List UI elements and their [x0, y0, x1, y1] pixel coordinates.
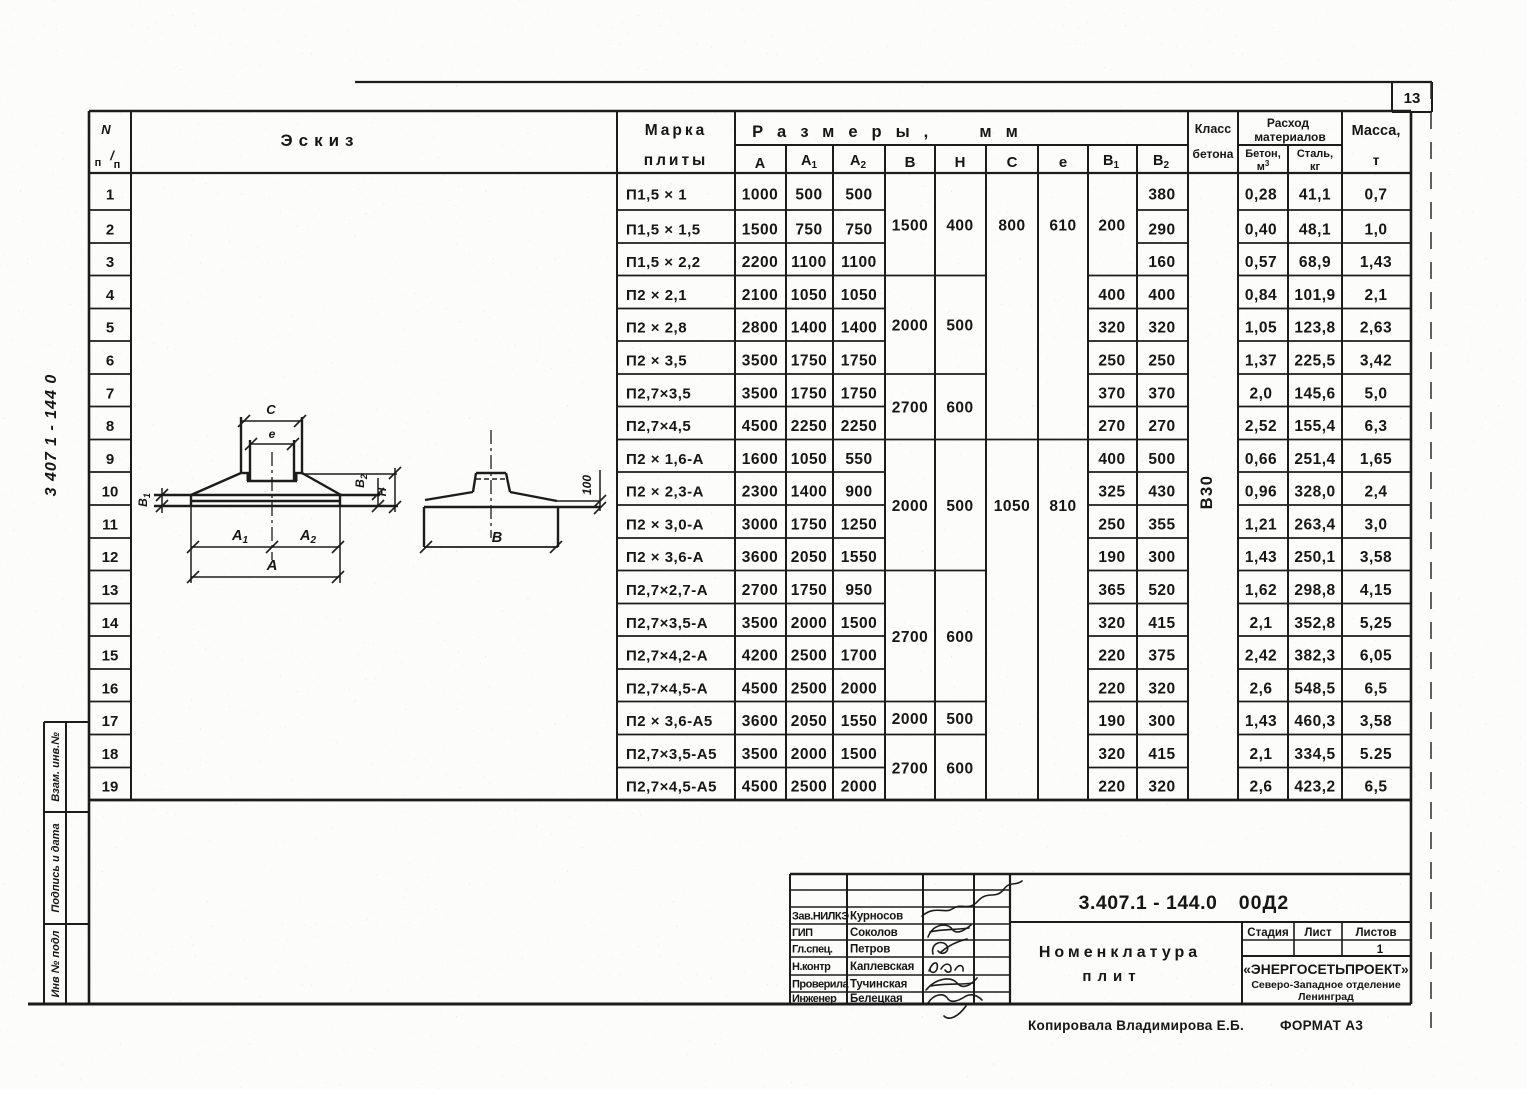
svg-text:Масса,: Масса, — [1352, 123, 1401, 139]
svg-text:3000: 3000 — [742, 516, 778, 533]
svg-text:Каплевская: Каплевская — [850, 961, 914, 973]
svg-text:2,1: 2,1 — [1249, 615, 1272, 632]
svg-text:П2 × 3,6-А: П2 × 3,6-А — [626, 549, 704, 566]
svg-text:2,6: 2,6 — [1249, 779, 1272, 796]
svg-text:380: 380 — [1148, 187, 1175, 204]
svg-text:1600: 1600 — [742, 451, 778, 468]
svg-text:13: 13 — [1404, 90, 1421, 107]
svg-text:3500: 3500 — [742, 615, 778, 632]
svg-text:Ленинград: Ленинград — [1298, 991, 1354, 1003]
svg-text:Сталь,: Сталь, — [1297, 148, 1333, 160]
svg-text:950: 950 — [845, 582, 872, 599]
svg-text:320: 320 — [1148, 779, 1175, 796]
svg-text:2100: 2100 — [742, 287, 778, 304]
svg-text:1500: 1500 — [892, 217, 928, 234]
svg-text:290: 290 — [1148, 221, 1175, 238]
svg-text:В: В — [492, 530, 502, 546]
svg-text:ФОРМАТ А3: ФОРМАТ А3 — [1280, 1018, 1363, 1033]
svg-text:7: 7 — [106, 385, 114, 402]
svg-text:1750: 1750 — [841, 353, 877, 370]
svg-text:270: 270 — [1098, 418, 1125, 435]
svg-text:298,8: 298,8 — [1294, 582, 1335, 599]
svg-text:2000: 2000 — [892, 498, 928, 515]
svg-text:А: А — [266, 557, 278, 574]
svg-text:415: 415 — [1148, 746, 1175, 763]
svg-text:352,8: 352,8 — [1294, 615, 1335, 632]
svg-text:2500: 2500 — [791, 648, 827, 665]
svg-text:370: 370 — [1098, 385, 1125, 402]
svg-text:900: 900 — [845, 484, 872, 501]
svg-text:400: 400 — [1098, 287, 1125, 304]
svg-text:2700: 2700 — [892, 760, 928, 777]
svg-text:2050: 2050 — [791, 713, 827, 730]
svg-text:2500: 2500 — [791, 779, 827, 796]
svg-text:500: 500 — [946, 318, 973, 335]
svg-text:375: 375 — [1148, 648, 1175, 665]
svg-text:1: 1 — [1377, 944, 1384, 956]
svg-text:П2,7×3,5-А: П2,7×3,5-А — [626, 615, 708, 632]
svg-text:Взам. инв.№: Взам. инв.№ — [50, 732, 62, 802]
svg-text:1,21: 1,21 — [1245, 516, 1277, 533]
svg-text:Белецкая: Белецкая — [850, 993, 903, 1005]
svg-text:1000: 1000 — [742, 187, 778, 204]
svg-text:Курносов: Курносов — [850, 911, 903, 923]
svg-text:2200: 2200 — [742, 254, 778, 271]
svg-text:41,1: 41,1 — [1299, 187, 1331, 204]
svg-text:Номенклатура: Номенклатура — [1039, 944, 1201, 961]
svg-text:П2,7×4,5-А5: П2,7×4,5-А5 — [626, 779, 717, 796]
svg-text:Н: Н — [955, 154, 966, 171]
svg-text:155,4: 155,4 — [1294, 418, 1335, 435]
svg-text:Северо-Западное отделение: Северо-Западное отделение — [1251, 979, 1401, 991]
svg-text:2,1: 2,1 — [1249, 746, 1272, 763]
svg-text:Тучинская: Тучинская — [850, 979, 907, 991]
svg-text:П2,7×2,7-А: П2,7×2,7-А — [626, 582, 708, 599]
svg-text:1,37: 1,37 — [1245, 353, 1277, 370]
svg-text:0,66: 0,66 — [1245, 451, 1277, 468]
svg-text:А: А — [755, 156, 766, 172]
svg-text:600: 600 — [946, 400, 973, 417]
svg-text:3600: 3600 — [742, 549, 778, 566]
svg-text:750: 750 — [845, 221, 872, 238]
svg-text:2000: 2000 — [791, 746, 827, 763]
svg-text:320: 320 — [1098, 320, 1125, 337]
svg-text:17: 17 — [102, 713, 119, 730]
svg-text:500: 500 — [1148, 451, 1175, 468]
svg-text:4500: 4500 — [742, 779, 778, 796]
svg-text:1,43: 1,43 — [1360, 254, 1392, 271]
svg-text:3600: 3600 — [742, 713, 778, 730]
svg-text:П2,7×4,5-А: П2,7×4,5-А — [626, 680, 708, 697]
svg-text:Проверила: Проверила — [792, 979, 850, 991]
svg-text:1,05: 1,05 — [1245, 320, 1277, 337]
svg-text:плит: плит — [1082, 968, 1141, 985]
svg-text:2700: 2700 — [742, 582, 778, 599]
svg-text:10: 10 — [102, 484, 119, 501]
svg-text:1400: 1400 — [791, 320, 827, 337]
svg-text:П2 × 3,0-А: П2 × 3,0-А — [626, 516, 704, 533]
svg-text:кг: кг — [1310, 161, 1321, 173]
svg-text:П1,5 × 2,2: П1,5 × 2,2 — [626, 254, 701, 271]
svg-text:5.25: 5.25 — [1360, 746, 1392, 763]
svg-text:П2 × 2,1: П2 × 2,1 — [626, 287, 687, 304]
svg-text:4,15: 4,15 — [1360, 582, 1392, 599]
svg-text:1050: 1050 — [841, 287, 877, 304]
svg-text:3500: 3500 — [742, 353, 778, 370]
svg-text:П2 × 3,6-А5: П2 × 3,6-А5 — [626, 713, 713, 730]
svg-text:6,3: 6,3 — [1364, 418, 1387, 435]
svg-text:250: 250 — [1148, 353, 1175, 370]
svg-text:1700: 1700 — [841, 648, 877, 665]
svg-text:0,28: 0,28 — [1245, 187, 1277, 204]
svg-text:Петров: Петров — [850, 944, 890, 956]
svg-text:220: 220 — [1098, 779, 1125, 796]
svg-text:1050: 1050 — [791, 451, 827, 468]
svg-text:2300: 2300 — [742, 484, 778, 501]
svg-text:550: 550 — [845, 451, 872, 468]
svg-text:Лист: Лист — [1304, 927, 1332, 939]
svg-text:1750: 1750 — [791, 353, 827, 370]
svg-text:П1,5 × 1: П1,5 × 1 — [626, 187, 687, 204]
svg-text:100: 100 — [580, 475, 594, 495]
svg-text:П2 × 3,5: П2 × 3,5 — [626, 353, 687, 370]
svg-text:250,1: 250,1 — [1294, 549, 1335, 566]
svg-text:6,05: 6,05 — [1360, 648, 1392, 665]
svg-text:1500: 1500 — [841, 615, 877, 632]
svg-text:2700: 2700 — [892, 400, 928, 417]
svg-text:1750: 1750 — [791, 582, 827, 599]
svg-text:2,1: 2,1 — [1364, 287, 1387, 304]
svg-text:19: 19 — [102, 779, 119, 796]
svg-text:Расход: Расход — [1267, 116, 1310, 130]
svg-text:Соколов: Соколов — [850, 927, 898, 939]
svg-text:П1,5 × 1,5: П1,5 × 1,5 — [626, 221, 701, 238]
svg-text:3,58: 3,58 — [1360, 549, 1392, 566]
svg-text:Листов: Листов — [1355, 927, 1396, 939]
svg-text:2000: 2000 — [841, 779, 877, 796]
svg-text:2000: 2000 — [892, 711, 928, 728]
svg-text:328,0: 328,0 — [1294, 484, 1335, 501]
svg-text:бетона: бетона — [1193, 147, 1234, 161]
svg-text:плиты: плиты — [644, 152, 709, 169]
svg-text:355: 355 — [1148, 516, 1175, 533]
svg-text:3: 3 — [106, 254, 114, 271]
svg-text:«ЭНЕРГОСЕТЬПРОЕКТ»: «ЭНЕРГОСЕТЬПРОЕКТ» — [1243, 962, 1409, 977]
svg-text:1,65: 1,65 — [1360, 451, 1392, 468]
svg-text:13: 13 — [102, 582, 119, 599]
svg-text:12: 12 — [102, 549, 119, 566]
svg-text:3.407.1 - 144.0: 3.407.1 - 144.0 — [1079, 892, 1218, 914]
svg-text:1,43: 1,43 — [1245, 549, 1277, 566]
svg-text:382,3: 382,3 — [1294, 648, 1335, 665]
svg-text:3,42: 3,42 — [1360, 353, 1392, 370]
svg-text:0,57: 0,57 — [1245, 254, 1277, 271]
svg-text:225,5: 225,5 — [1294, 353, 1335, 370]
svg-text:1750: 1750 — [791, 385, 827, 402]
svg-text:3,58: 3,58 — [1360, 713, 1392, 730]
svg-text:200: 200 — [1098, 217, 1125, 234]
svg-text:6,5: 6,5 — [1364, 680, 1387, 697]
svg-text:3500: 3500 — [742, 385, 778, 402]
svg-text:П2,7×3,5: П2,7×3,5 — [626, 385, 691, 402]
svg-text:251,4: 251,4 — [1294, 451, 1335, 468]
svg-text:Марка: Марка — [645, 122, 708, 139]
svg-text:п: п — [114, 159, 121, 171]
svg-text:е: е — [269, 427, 276, 441]
svg-text:415: 415 — [1148, 615, 1175, 632]
svg-text:1050: 1050 — [791, 287, 827, 304]
svg-text:1: 1 — [106, 187, 114, 204]
svg-text:Класс: Класс — [1195, 122, 1231, 136]
svg-text:2000: 2000 — [791, 615, 827, 632]
svg-text:Инженер: Инженер — [792, 993, 837, 1005]
svg-text:423,2: 423,2 — [1294, 779, 1335, 796]
svg-text:1,43: 1,43 — [1245, 713, 1277, 730]
svg-text:334,5: 334,5 — [1294, 746, 1335, 763]
svg-text:263,4: 263,4 — [1294, 516, 1335, 533]
svg-text:2250: 2250 — [791, 418, 827, 435]
svg-text:Инв № подл: Инв № подл — [50, 930, 62, 997]
svg-text:1400: 1400 — [791, 484, 827, 501]
svg-text:500: 500 — [795, 187, 822, 204]
svg-text:320: 320 — [1148, 320, 1175, 337]
svg-text:400: 400 — [946, 217, 973, 234]
svg-text:500: 500 — [946, 711, 973, 728]
svg-text:4: 4 — [106, 287, 115, 304]
svg-text:Копировала Владимирова Е.Б.: Копировала Владимирова Е.Б. — [1028, 1018, 1244, 1033]
svg-text:материалов: материалов — [1254, 130, 1326, 144]
svg-text:4500: 4500 — [742, 418, 778, 435]
svg-text:600: 600 — [946, 760, 973, 777]
svg-text:320: 320 — [1098, 746, 1125, 763]
svg-text:2800: 2800 — [742, 320, 778, 337]
svg-text:В30: В30 — [1198, 475, 1216, 510]
svg-text:Зав.НИЛКЭ: Зав.НИЛКЭ — [792, 911, 849, 923]
svg-text:250: 250 — [1098, 353, 1125, 370]
svg-text:14: 14 — [102, 615, 119, 632]
svg-text:0,96: 0,96 — [1245, 484, 1277, 501]
svg-text:П2 × 2,3-А: П2 × 2,3-А — [626, 484, 704, 501]
svg-text:520: 520 — [1148, 582, 1175, 599]
svg-text:2,63: 2,63 — [1360, 320, 1392, 337]
svg-text:п: п — [95, 157, 102, 169]
svg-text:400: 400 — [1148, 287, 1175, 304]
svg-text:2,6: 2,6 — [1249, 680, 1272, 697]
svg-text:500: 500 — [946, 498, 973, 515]
svg-text:4200: 4200 — [742, 648, 778, 665]
svg-text:320: 320 — [1148, 680, 1175, 697]
svg-text:1550: 1550 — [841, 549, 877, 566]
svg-text:т: т — [1373, 152, 1380, 168]
svg-text:N: N — [101, 122, 111, 137]
svg-text:В: В — [905, 154, 916, 171]
svg-text:С: С — [1007, 154, 1018, 171]
svg-text:2700: 2700 — [892, 629, 928, 646]
svg-text:548,5: 548,5 — [1294, 680, 1335, 697]
svg-text:5: 5 — [106, 320, 114, 337]
svg-text:610: 610 — [1049, 217, 1076, 234]
svg-text:220: 220 — [1098, 648, 1125, 665]
svg-text:2,52: 2,52 — [1245, 418, 1277, 435]
svg-text:6: 6 — [106, 353, 114, 370]
svg-text:П2 × 2,8: П2 × 2,8 — [626, 320, 687, 337]
svg-text:800: 800 — [998, 217, 1025, 234]
svg-text:810: 810 — [1049, 498, 1076, 515]
svg-text:Подпись и дата: Подпись и дата — [50, 823, 62, 912]
svg-text:0,7: 0,7 — [1364, 187, 1387, 204]
svg-text:11: 11 — [102, 516, 118, 533]
svg-text:300: 300 — [1148, 549, 1175, 566]
svg-text:2,4: 2,4 — [1364, 484, 1387, 501]
svg-text:750: 750 — [795, 221, 822, 238]
svg-text:3 407 1 - 144 0: 3 407 1 - 144 0 — [43, 374, 60, 497]
svg-text:Бетон,: Бетон, — [1245, 148, 1281, 160]
svg-text:1,62: 1,62 — [1245, 582, 1277, 599]
svg-text:1750: 1750 — [841, 385, 877, 402]
svg-text:15: 15 — [102, 648, 119, 665]
svg-text:Гл.спец.: Гл.спец. — [792, 944, 833, 956]
svg-text:Н.контр: Н.контр — [792, 961, 831, 973]
svg-text:2250: 2250 — [841, 418, 877, 435]
svg-text:1400: 1400 — [841, 320, 877, 337]
svg-text:Эскиз: Эскиз — [281, 131, 360, 150]
svg-text:0,84: 0,84 — [1245, 287, 1277, 304]
svg-text:1250: 1250 — [841, 516, 877, 533]
svg-text:190: 190 — [1098, 549, 1125, 566]
svg-text:Н: Н — [375, 487, 389, 496]
svg-text:600: 600 — [946, 629, 973, 646]
svg-text:8: 8 — [106, 418, 114, 435]
svg-text:1750: 1750 — [791, 516, 827, 533]
svg-text:00Д2: 00Д2 — [1239, 892, 1289, 914]
svg-text:5,25: 5,25 — [1360, 615, 1392, 632]
svg-text:325: 325 — [1098, 484, 1125, 501]
svg-text:4500: 4500 — [742, 680, 778, 697]
svg-text:1500: 1500 — [841, 746, 877, 763]
svg-text:е: е — [1059, 154, 1067, 171]
svg-text:250: 250 — [1098, 516, 1125, 533]
svg-text:5,0: 5,0 — [1364, 385, 1387, 402]
svg-text:П2,7×4,2-А: П2,7×4,2-А — [626, 648, 708, 665]
svg-text:1100: 1100 — [791, 254, 827, 271]
svg-text:370: 370 — [1148, 385, 1175, 402]
svg-text:2,0: 2,0 — [1249, 385, 1272, 402]
svg-text:300: 300 — [1148, 713, 1175, 730]
svg-text:2: 2 — [106, 221, 114, 238]
svg-text:Размеры, мм: Размеры, мм — [752, 123, 1032, 141]
svg-text:3500: 3500 — [742, 746, 778, 763]
svg-text:1,0: 1,0 — [1364, 221, 1387, 238]
svg-text:П2,7×4,5: П2,7×4,5 — [626, 418, 691, 435]
svg-text:9: 9 — [106, 451, 114, 468]
svg-text:145,6: 145,6 — [1294, 385, 1335, 402]
svg-text:16: 16 — [102, 680, 119, 697]
svg-text:1550: 1550 — [841, 713, 877, 730]
svg-text:123,8: 123,8 — [1294, 320, 1335, 337]
svg-text:3,0: 3,0 — [1364, 516, 1387, 533]
svg-text:2500: 2500 — [791, 680, 827, 697]
svg-text:Стадия: Стадия — [1247, 927, 1288, 939]
svg-text:160: 160 — [1148, 254, 1175, 271]
svg-text:101,9: 101,9 — [1294, 287, 1335, 304]
svg-text:68,9: 68,9 — [1299, 254, 1331, 271]
svg-text:1050: 1050 — [994, 498, 1030, 515]
svg-text:0,40: 0,40 — [1245, 221, 1277, 238]
svg-text:1100: 1100 — [841, 254, 877, 271]
svg-text:6,5: 6,5 — [1364, 779, 1387, 796]
svg-text:190: 190 — [1098, 713, 1125, 730]
svg-text:320: 320 — [1098, 615, 1125, 632]
svg-text:500: 500 — [845, 187, 872, 204]
svg-text:С: С — [266, 402, 276, 417]
svg-text:ГИП: ГИП — [792, 927, 813, 939]
svg-text:220: 220 — [1098, 680, 1125, 697]
svg-text:2,42: 2,42 — [1245, 648, 1277, 665]
svg-text:2000: 2000 — [841, 680, 877, 697]
svg-text:365: 365 — [1098, 582, 1125, 599]
svg-text:1500: 1500 — [742, 221, 778, 238]
svg-text:2000: 2000 — [892, 318, 928, 335]
svg-text:430: 430 — [1148, 484, 1175, 501]
svg-text:270: 270 — [1148, 418, 1175, 435]
svg-text:2050: 2050 — [791, 549, 827, 566]
svg-text:48,1: 48,1 — [1299, 221, 1331, 238]
svg-text:П2 × 1,6-А: П2 × 1,6-А — [626, 451, 704, 468]
svg-text:18: 18 — [102, 746, 119, 763]
svg-text:400: 400 — [1098, 451, 1125, 468]
svg-text:П2,7×3,5-А5: П2,7×3,5-А5 — [626, 746, 717, 763]
svg-text:460,3: 460,3 — [1294, 713, 1335, 730]
